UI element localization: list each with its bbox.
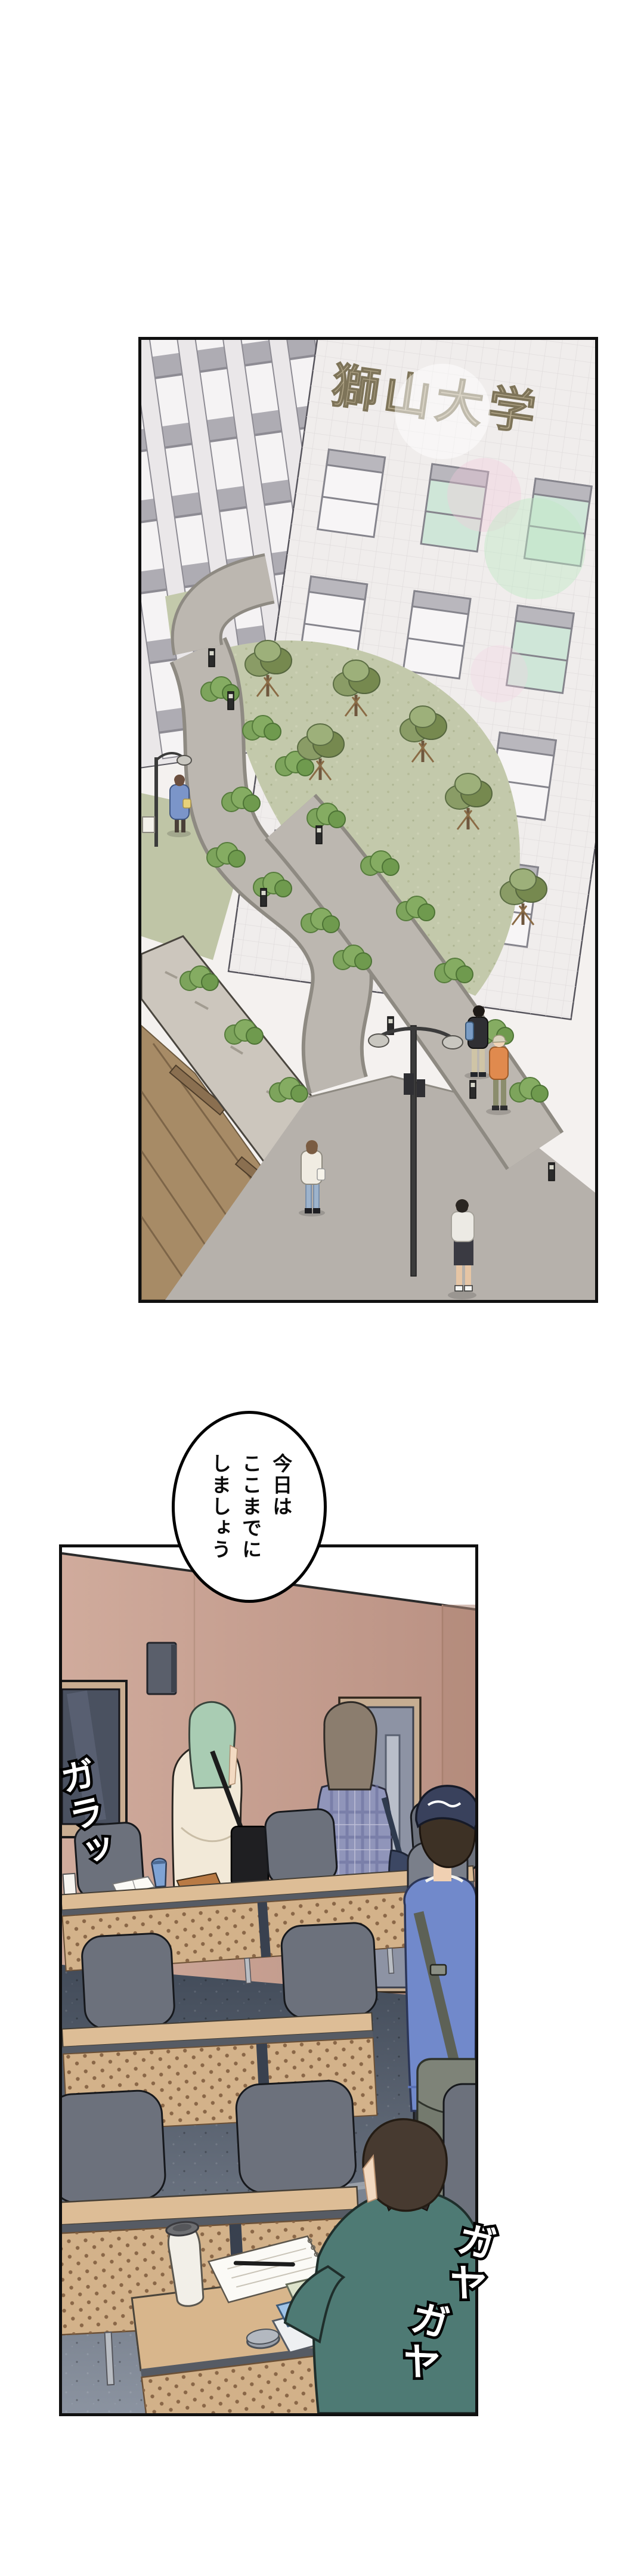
bob-hair [324, 1702, 376, 1789]
classroom-scene [62, 1547, 475, 2413]
white-cup [63, 1874, 76, 1896]
speech-bubble: 今日は ここまでに しましょう [172, 1411, 327, 1603]
speech-bubble-text: 今日は ここまでに しましょう [203, 1453, 295, 1561]
speech-line: しましょう [203, 1453, 234, 1561]
shoulder-bag [231, 1826, 268, 1886]
wall-speaker [147, 1643, 177, 1694]
classroom-panel [59, 1544, 478, 2416]
speech-line: ここまでに [234, 1453, 264, 1561]
campus-scene: 獅山大学 [141, 340, 595, 1300]
mint-hair [189, 1702, 235, 1788]
speech-line: 今日は [265, 1453, 295, 1561]
campus-panel: 獅山大学 [138, 337, 598, 1303]
